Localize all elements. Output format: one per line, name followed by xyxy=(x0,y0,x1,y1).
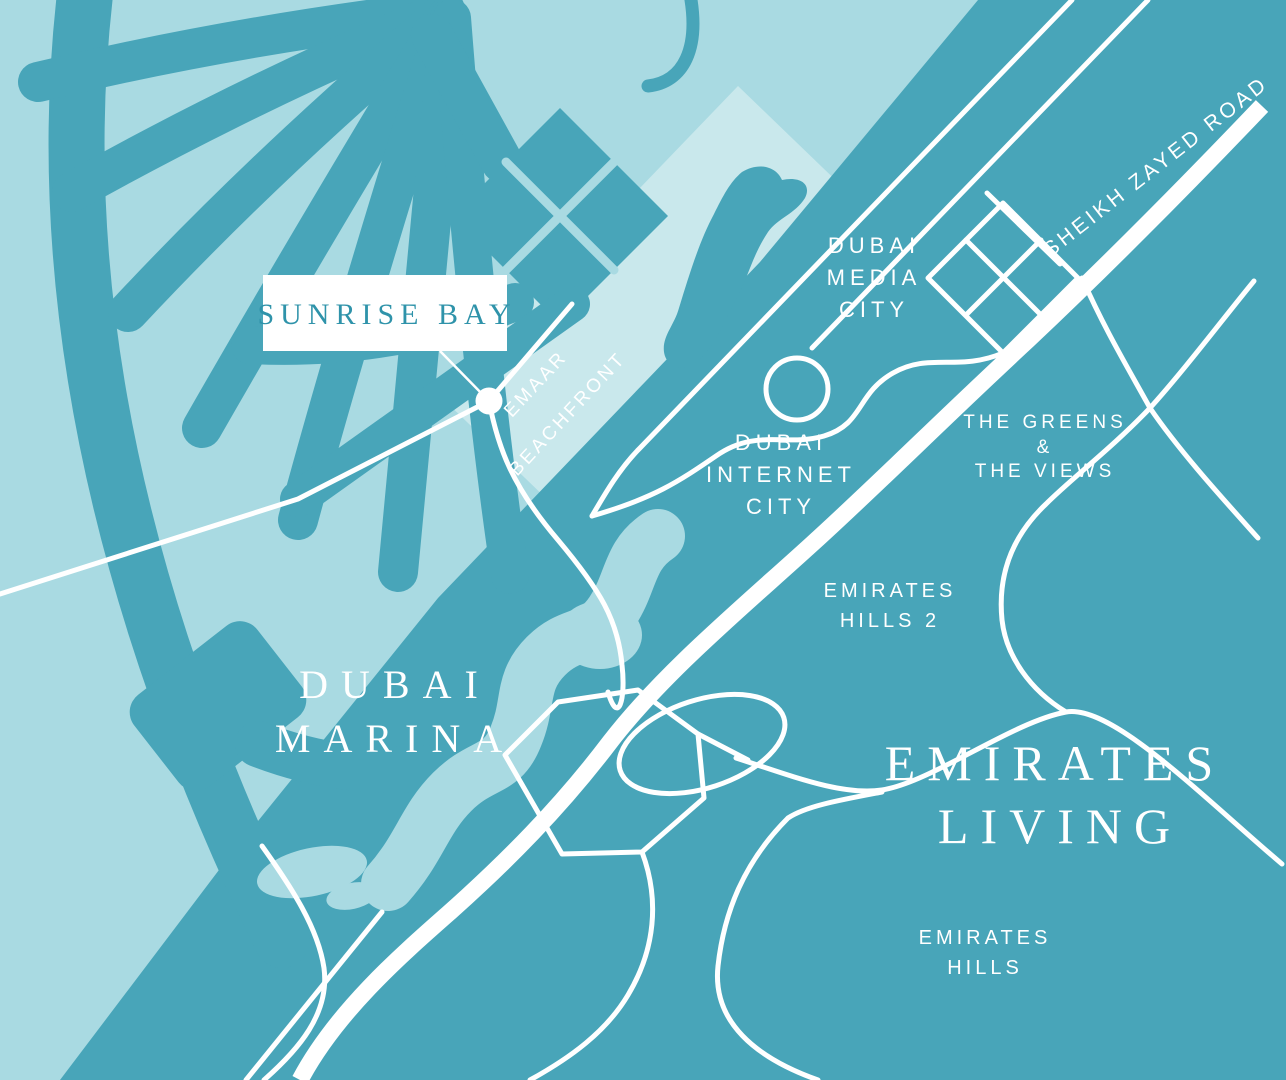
emirates-hills-label-line1: EMIRATES xyxy=(919,927,1052,949)
greens-views-label-line3: THE VIEWS xyxy=(975,461,1116,482)
dubai-media-city-label-line2: MEDIA xyxy=(827,265,922,290)
sunrise-bay-label: SUNRISE BAY xyxy=(257,298,516,331)
greens-views-label-line1: THE GREENS xyxy=(963,412,1127,433)
dubai-internet-city-label-line1: DUBAI xyxy=(735,430,827,455)
sunrise-bay-marker xyxy=(476,388,503,415)
dubai-marina-label-line1: DUBAI xyxy=(299,662,491,707)
emirates-living-label-line2: LIVING xyxy=(938,798,1182,854)
emirates-hills-2-label-line1: EMIRATES xyxy=(824,580,957,602)
emirates-hills-2-label-line2: HILLS 2 xyxy=(840,610,940,632)
emirates-living-label-line1: EMIRATES xyxy=(885,735,1225,791)
emirates-hills-label-line2: HILLS xyxy=(947,957,1023,979)
dubai-media-city-label-line1: DUBAI xyxy=(828,233,920,258)
dubai-internet-city-label-line3: CITY xyxy=(746,494,816,519)
location-map: SHEIKH ZAYED ROAD EMAAR BEACHFRONT DUBAI… xyxy=(0,0,1286,1080)
dubai-internet-city-label-line2: INTERNET xyxy=(706,462,856,487)
map-canvas: SHEIKH ZAYED ROAD EMAAR BEACHFRONT DUBAI… xyxy=(0,0,1286,1080)
dubai-media-city-label-line3: CITY xyxy=(839,297,909,322)
greens-lake xyxy=(558,601,642,669)
greens-views-label-line2: & xyxy=(1037,437,1054,458)
dubai-marina-label-line2: MARINA xyxy=(275,716,515,761)
